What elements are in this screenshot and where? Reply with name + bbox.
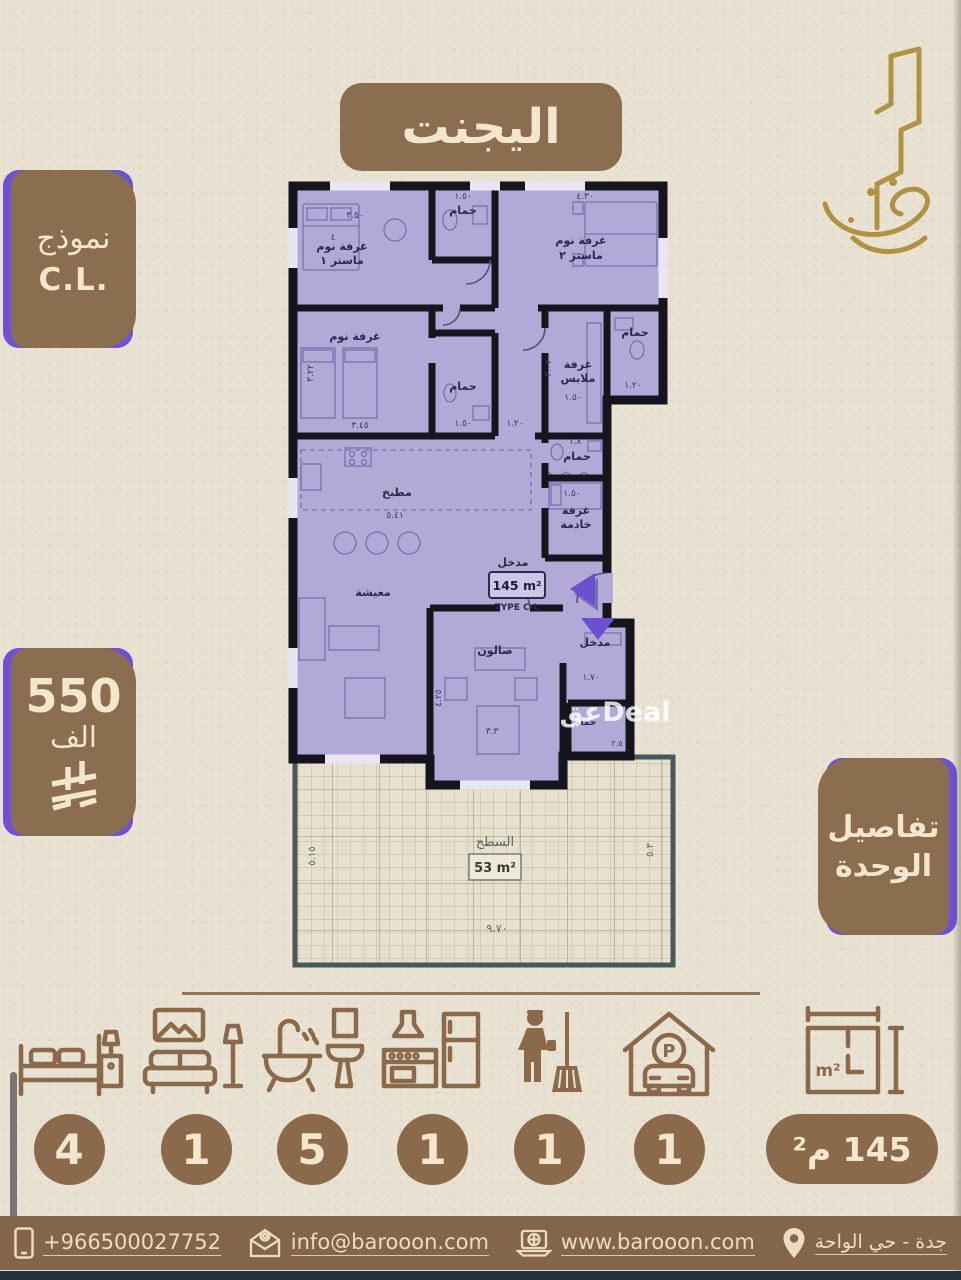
kitchen-icon [378,1006,486,1098]
footer-contact-bar: +966500027752 info@barooon.com www.baroo… [0,1216,961,1270]
bed-icon [13,1006,125,1098]
svg-text:غرفة: غرفة [562,504,590,517]
details-line1: تفاصيل [827,810,939,845]
area-icon: m² [800,1006,904,1100]
svg-text:حمام: حمام [449,380,477,393]
footer-email[interactable]: info@barooon.com [248,1228,489,1258]
website-icon [516,1229,552,1257]
price-unit: الف [50,722,97,754]
svg-text:غرفة نوم: غرفة نوم [555,234,606,247]
kitchens-count: 1 [397,1114,468,1185]
svg-text:٣.٥٠: ٣.٥٠ [346,211,363,221]
email-icon [248,1228,282,1258]
svg-text:١.٧٠: ١.٧٠ [582,673,599,683]
svg-text:TYPE C-L: TYPE C-L [495,603,540,613]
svg-text:٣.٤٥: ٣.٤٥ [351,421,369,431]
feature-kitchens: 1 [370,1006,494,1185]
feature-living-rooms: 1 [131,1006,261,1185]
svg-text:ماستر ١: ماستر ١ [320,254,364,267]
footer-phone[interactable]: +966500027752 [14,1227,221,1259]
model-label: نموذج [37,221,111,256]
svg-text:١.٥٠: ١.٥٠ [454,192,471,202]
living-rooms-count: 1 [161,1114,232,1185]
bathrooms-count: 5 [277,1114,348,1185]
total-area-pill: 145 م² [766,1114,938,1184]
price-amount: 550 [25,672,121,720]
svg-text:غرفة نوم: غرفة نوم [316,240,367,253]
parking-count: 1 [634,1114,705,1185]
svg-text:حمام: حمام [449,204,477,217]
bedrooms-count: 4 [34,1114,105,1185]
svg-text:٤.٣٠: ٤.٣٠ [576,192,593,202]
svg-text:صالون: صالون [477,644,512,657]
divider-line [182,992,760,995]
svg-text:غرفة نوم: غرفة نوم [329,330,380,343]
svg-text:١.٢٠: ١.٢٠ [624,381,641,391]
svg-text:٥.٣: ٥.٣ [645,842,656,857]
svg-text:مطبخ: مطبخ [382,486,412,499]
svg-text:١.٨: ١.٨ [569,437,582,447]
feature-parking: P 1 [607,1006,731,1185]
svg-text:٢.٥: ٢.٥ [611,739,622,748]
maid-icon [509,1006,589,1098]
svg-text:٥.٤١: ٥.٤١ [386,511,403,521]
svg-text:حمام: حمام [563,450,591,463]
terrace-label: السطح [476,835,514,850]
svg-text:١.٥٠: ١.٥٠ [563,489,580,499]
svg-text:حمام: حمام [621,326,649,339]
floor-plan: السطح 53 m² ٩.٧٠ ٥.١٥ ٥.٣ [285,178,685,978]
parking-icon: P [617,1006,721,1098]
svg-text:٣.٠٢: ٣.٠٢ [544,359,554,377]
phone-icon [14,1227,34,1259]
saudi-riyal-icon [50,760,98,812]
svg-text:٥.١٥: ٥.١٥ [307,846,318,865]
feature-bedrooms: 4 [4,1006,134,1185]
footer-website[interactable]: www.barooon.com [516,1229,755,1257]
unit-area-box: 145 m² TYPE C-L [489,572,545,613]
svg-text:٤: ٤ [331,233,336,243]
sofa-icon [141,1006,251,1098]
location-pin-icon [782,1227,806,1259]
website-url: www.barooon.com [561,1230,755,1256]
location-text: جدة - حي الواحة [815,1231,947,1255]
bottom-edge [0,1271,961,1280]
svg-text:مدخل: مدخل [580,636,611,649]
price-badge: 550 الف [11,648,136,836]
feature-bathrooms: 5 [250,1006,374,1185]
svg-text:معيشة: معيشة [355,586,390,599]
model-badge: نموذج C.L. [11,170,136,348]
svg-text:145 m²: 145 m² [493,578,542,593]
title-badge: اليجنت [340,83,622,171]
watermark: عقDeal [560,697,671,728]
email-address: info@barooon.com [291,1230,489,1256]
svg-text:m²: m² [815,1061,840,1081]
brochure-page: اليجنت نموذج C.L. 550 الف [0,0,961,1280]
unit-details-badge: تفاصيل الوحدة [818,758,949,935]
terrace-width-dim: ٩.٧٠ [486,922,507,935]
baroon-calligraphy-logo [795,42,955,277]
entry-door-opening [601,573,613,603]
svg-text:ماستر ٢: ماستر ٢ [559,249,603,262]
page-title: اليجنت [401,99,560,155]
svg-text:خادمة: خادمة [560,518,591,531]
svg-text:٤.٢٥: ٤.٢٥ [434,689,444,707]
svg-text:١.٥٠: ١.٥٠ [564,393,581,403]
svg-text:١.٢٠: ١.٢٠ [506,419,523,429]
svg-text:ملابس: ملابس [561,372,596,385]
details-line2: الوحدة [835,849,932,884]
svg-text:غرفة: غرفة [564,358,592,371]
bathtub-icon [256,1006,368,1098]
maid-rooms-count: 1 [514,1114,585,1185]
feature-area: m² 145 م² [762,1006,942,1184]
svg-text:٣.٣: ٣.٣ [486,727,499,737]
model-code: C.L. [38,262,108,298]
footer-location[interactable]: جدة - حي الواحة [782,1227,947,1259]
terrace-area-value: 53 m² [474,861,516,876]
svg-text:٣.٢٢: ٣.٢٢ [306,364,316,382]
phone-number: +966500027752 [43,1230,221,1256]
svg-text:P: P [662,1041,675,1062]
svg-text:مدخل: مدخل [498,556,529,569]
edge-shadow [952,0,961,1280]
svg-text:١.٥٠: ١.٥٠ [454,419,471,429]
feature-maid-rooms: 1 [487,1006,611,1185]
